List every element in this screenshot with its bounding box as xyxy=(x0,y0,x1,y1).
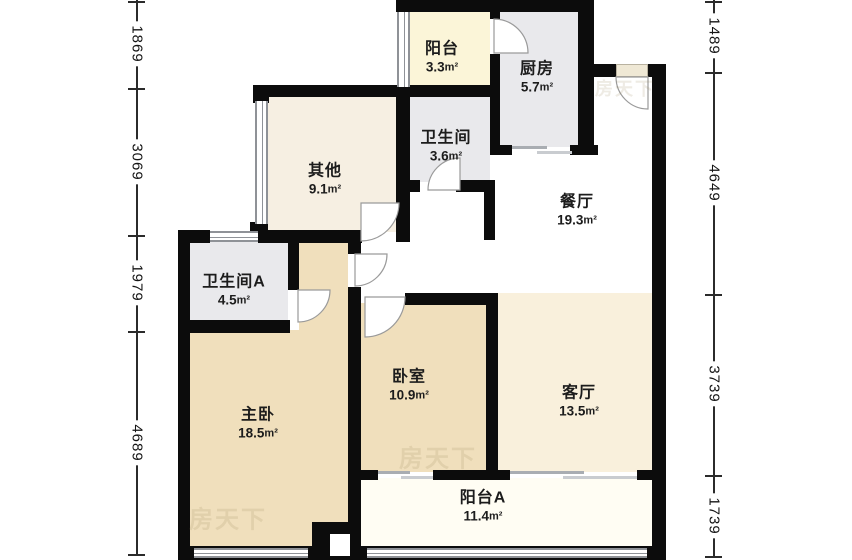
dim-tick xyxy=(128,1,145,3)
sliding-door-bedroom xyxy=(378,471,433,479)
wall xyxy=(456,180,495,192)
shaft-opening xyxy=(330,534,350,556)
room-area: 19.3m² xyxy=(557,213,597,230)
room-label-bathroom: 卫生间 3.6m² xyxy=(420,129,471,166)
dim-label: 1739 xyxy=(705,493,724,538)
room-label-other: 其他 9.1m² xyxy=(308,162,342,199)
dim-tick xyxy=(705,294,722,296)
room-label-dining: 餐厅 19.3m² xyxy=(557,193,597,230)
wall xyxy=(348,287,361,560)
room-area: 11.4m² xyxy=(460,509,507,526)
dim-tick xyxy=(128,554,145,556)
wall xyxy=(178,230,190,560)
room-name: 主卧 xyxy=(238,406,278,426)
room-name: 厨房 xyxy=(520,60,554,80)
dim-label: 4689 xyxy=(128,420,147,465)
entry-door-sill xyxy=(616,64,648,77)
wall xyxy=(396,0,594,12)
room-label-bedroom: 卧室 10.9m² xyxy=(389,368,429,405)
window-master-bedroom xyxy=(194,548,308,558)
floor-hallway xyxy=(299,242,348,334)
dim-tick xyxy=(705,475,722,477)
room-name: 卧室 xyxy=(389,368,429,388)
room-area: 4.5m² xyxy=(202,293,266,310)
dim-tick xyxy=(705,556,722,558)
dim-tick xyxy=(705,1,722,3)
wall xyxy=(484,192,495,240)
wall xyxy=(570,145,598,155)
floor-living-room xyxy=(498,293,652,472)
room-area: 3.6m² xyxy=(420,149,471,166)
window-balcony-a xyxy=(367,548,647,558)
floor-plan: 房天下 房天下 房天下 xyxy=(0,0,852,560)
room-name: 其他 xyxy=(308,162,342,182)
wall xyxy=(637,470,666,480)
door-arc-entry xyxy=(616,77,648,109)
room-label-kitchen: 厨房 5.7m² xyxy=(520,60,554,97)
dim-label: 4649 xyxy=(705,160,724,205)
window-balcony-north xyxy=(397,12,410,87)
dim-tick xyxy=(128,331,145,333)
window-other xyxy=(255,101,268,224)
room-name: 阳台 xyxy=(425,40,459,60)
sliding-door-living xyxy=(510,471,637,479)
wall xyxy=(396,97,410,242)
room-area: 13.5m² xyxy=(559,404,599,421)
room-area: 3.3m² xyxy=(425,60,459,77)
room-name: 阳台A xyxy=(460,489,507,509)
room-label-master-bedroom: 主卧 18.5m² xyxy=(238,406,278,443)
wall xyxy=(361,470,378,480)
wall xyxy=(253,85,492,97)
room-area: 18.5m² xyxy=(238,426,278,443)
dim-label: 3739 xyxy=(705,361,724,406)
wall xyxy=(652,64,666,557)
dim-tick xyxy=(705,72,722,74)
wall xyxy=(258,230,362,243)
room-name: 卫生间 xyxy=(420,129,471,149)
door-arc-hallway xyxy=(355,254,387,286)
wall xyxy=(490,145,512,155)
room-area: 10.9m² xyxy=(389,388,429,405)
window-bathroom-a xyxy=(210,231,258,242)
room-label-balcony-north: 阳台 3.3m² xyxy=(425,40,459,77)
wall xyxy=(288,242,299,290)
room-area: 5.7m² xyxy=(520,80,554,97)
room-label-living: 客厅 13.5m² xyxy=(559,384,599,421)
wall xyxy=(178,320,290,333)
wall xyxy=(486,293,498,480)
dim-label: 3069 xyxy=(128,139,147,184)
wall xyxy=(348,241,361,254)
wall xyxy=(405,293,498,305)
room-name: 餐厅 xyxy=(557,193,597,213)
wall xyxy=(490,97,500,147)
wall xyxy=(592,64,618,77)
room-label-balcony-a: 阳台A 11.4m² xyxy=(460,489,507,526)
dim-label: 1489 xyxy=(705,13,724,58)
wall xyxy=(578,0,594,155)
dim-label: 1979 xyxy=(128,260,147,305)
watermark: 房天下 xyxy=(595,75,655,101)
wall xyxy=(490,12,500,19)
room-name: 客厅 xyxy=(559,384,599,404)
dim-tick xyxy=(128,88,145,90)
room-label-bathroom-a: 卫生间A 4.5m² xyxy=(202,273,266,310)
sliding-door-kitchen xyxy=(512,146,572,154)
dim-label: 1869 xyxy=(128,21,147,66)
room-area: 9.1m² xyxy=(308,182,342,199)
room-name: 卫生间A xyxy=(202,273,266,293)
wall xyxy=(433,470,510,480)
dim-tick xyxy=(128,235,145,237)
